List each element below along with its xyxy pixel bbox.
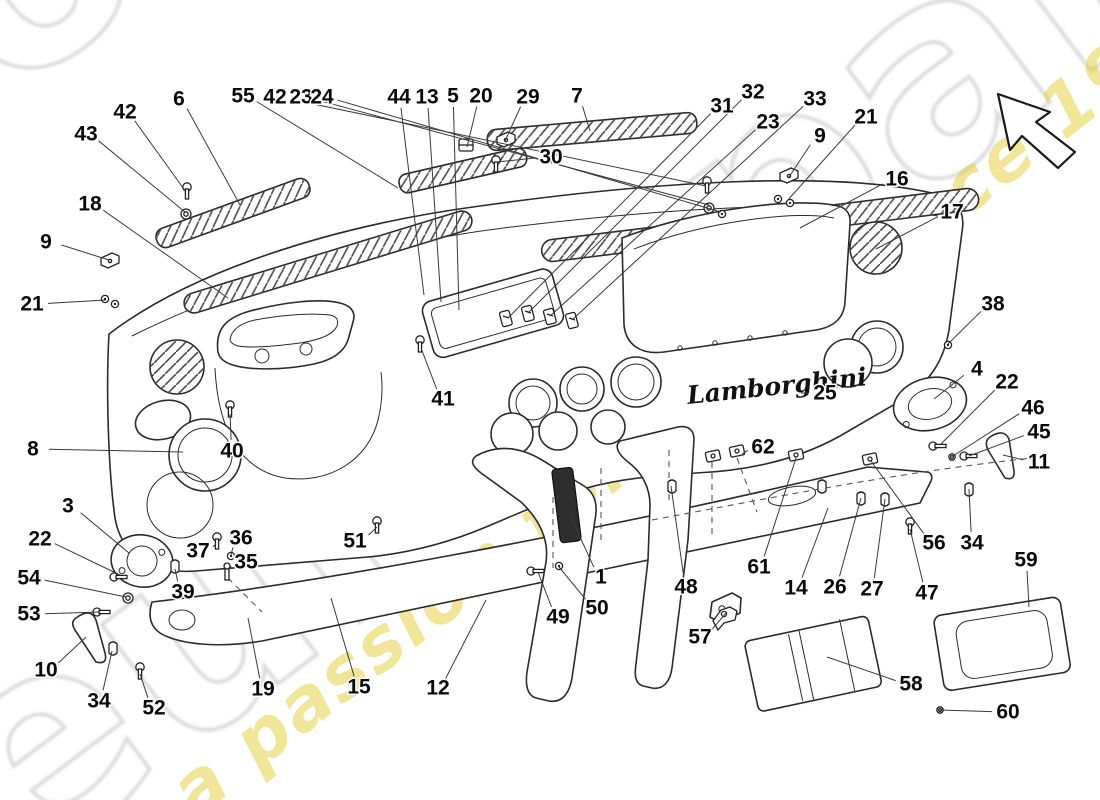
corner-trim-part-11: [986, 433, 1014, 479]
callout-14[interactable]: 14: [784, 577, 808, 600]
callout-9[interactable]: 9: [814, 125, 826, 148]
callout-17[interactable]: 17: [940, 201, 963, 224]
callout-42[interactable]: 42: [263, 86, 286, 109]
duct-circle-3: [591, 410, 625, 444]
callout-33[interactable]: 33: [803, 88, 826, 111]
callout-18[interactable]: 18: [78, 193, 102, 216]
callout-59[interactable]: 59: [1014, 549, 1037, 572]
callout-21[interactable]: 21: [20, 293, 44, 316]
leader-line-60: [940, 710, 992, 712]
callout-47[interactable]: 47: [915, 582, 938, 605]
callout-4[interactable]: 4: [971, 358, 983, 381]
callout-21[interactable]: 21: [854, 106, 878, 129]
callout-6[interactable]: 6: [173, 88, 185, 111]
callout-29[interactable]: 29: [516, 86, 539, 109]
callout-19[interactable]: 19: [251, 678, 274, 701]
hardware-clip: [818, 480, 826, 493]
callout-23[interactable]: 23: [289, 86, 312, 109]
duct-circle-2: [539, 412, 577, 450]
callout-39[interactable]: 39: [171, 581, 194, 604]
callout-37[interactable]: 37: [186, 540, 209, 563]
callout-57[interactable]: 57: [688, 626, 711, 649]
callout-46[interactable]: 46: [1021, 397, 1044, 420]
callout-7[interactable]: 7: [571, 85, 583, 108]
callout-62[interactable]: 62: [751, 436, 774, 459]
hardware-nut: [111, 300, 118, 307]
leader-line-55: [257, 102, 398, 188]
callout-51[interactable]: 51: [343, 530, 367, 553]
hardware-plate: [862, 453, 878, 466]
callout-10[interactable]: 10: [34, 659, 57, 682]
hardware-screw: [183, 183, 191, 199]
callout-61[interactable]: 61: [747, 556, 771, 579]
callout-5[interactable]: 5: [447, 85, 459, 108]
callout-25[interactable]: 25: [813, 382, 837, 405]
leader-line-47: [910, 529, 923, 582]
callout-36[interactable]: 36: [229, 527, 252, 550]
callout-50[interactable]: 50: [585, 597, 608, 620]
callout-35[interactable]: 35: [234, 551, 258, 574]
callout-9[interactable]: 9: [40, 231, 52, 254]
left-speaker-grille-hatch: [150, 340, 204, 394]
hardware-nut: [555, 562, 562, 569]
leader-line-9: [61, 245, 109, 260]
parts-diagram-page: eurospares eurospares a passion for part…: [0, 0, 1100, 800]
callout-54[interactable]: 54: [17, 567, 41, 590]
panel-58: [744, 614, 883, 713]
leader-line-42: [135, 121, 186, 192]
callout-41[interactable]: 41: [431, 388, 455, 411]
hardware-nut: [101, 295, 108, 302]
callout-43[interactable]: 43: [74, 123, 97, 146]
callout-30[interactable]: 30: [539, 146, 562, 169]
callout-32[interactable]: 32: [741, 81, 764, 104]
callout-56[interactable]: 56: [922, 532, 945, 555]
leader-line-21: [48, 300, 106, 303]
callout-26[interactable]: 26: [823, 576, 846, 599]
hardware-plate: [705, 450, 721, 463]
callout-22[interactable]: 22: [28, 528, 51, 551]
callout-44[interactable]: 44: [387, 86, 411, 109]
leader-line-38: [948, 311, 981, 344]
callout-22[interactable]: 22: [995, 371, 1018, 394]
hardware-nut: [944, 341, 951, 348]
callout-12[interactable]: 12: [426, 677, 449, 700]
callout-58[interactable]: 58: [899, 673, 923, 696]
callout-48[interactable]: 48: [674, 576, 698, 599]
callout-20[interactable]: 20: [469, 85, 492, 108]
leader-line-43: [99, 141, 185, 212]
callout-23[interactable]: 23: [756, 111, 779, 134]
hardware-bracket: [101, 253, 119, 268]
callout-15[interactable]: 15: [347, 676, 371, 699]
callout-55[interactable]: 55: [231, 85, 255, 108]
hardware-nut: [774, 195, 781, 202]
callout-11[interactable]: 11: [1028, 451, 1051, 474]
callout-53[interactable]: 53: [17, 603, 40, 626]
callout-49[interactable]: 49: [546, 606, 569, 629]
callout-34[interactable]: 34: [960, 532, 984, 555]
callout-31[interactable]: 31: [710, 95, 734, 118]
callout-1[interactable]: 1: [595, 566, 607, 589]
callout-40[interactable]: 40: [220, 440, 243, 463]
callout-45[interactable]: 45: [1027, 421, 1051, 444]
callout-38[interactable]: 38: [981, 293, 1005, 316]
callout-34[interactable]: 34: [87, 690, 111, 713]
callout-8[interactable]: 8: [27, 438, 39, 461]
hardware-bolt: [224, 563, 230, 580]
hardware-plate: [729, 445, 745, 458]
hardware-hscrew: [960, 452, 977, 460]
climate-ring-2: [560, 367, 604, 411]
callout-42[interactable]: 42: [113, 101, 136, 124]
vent-strip-6: [153, 176, 312, 250]
right-vent-grille-hatch: [850, 222, 902, 274]
callout-52[interactable]: 52: [142, 697, 165, 720]
callout-3[interactable]: 3: [62, 495, 74, 518]
panel-59: [933, 596, 1071, 691]
climate-ring-3: [611, 357, 661, 407]
callout-60[interactable]: 60: [996, 701, 1019, 724]
parts-diagram-canvas: eurospares eurospares a passion for part…: [0, 0, 1100, 800]
hardware-clip: [109, 642, 117, 655]
callout-16[interactable]: 16: [885, 168, 908, 191]
callout-13[interactable]: 13: [415, 86, 438, 109]
hardware-screw: [906, 518, 914, 534]
callout-24[interactable]: 24: [310, 86, 334, 109]
leader-line-6: [187, 109, 240, 205]
hardware-ring: [123, 593, 133, 603]
callout-27[interactable]: 27: [860, 578, 883, 601]
hardware-hscrew: [929, 442, 946, 450]
